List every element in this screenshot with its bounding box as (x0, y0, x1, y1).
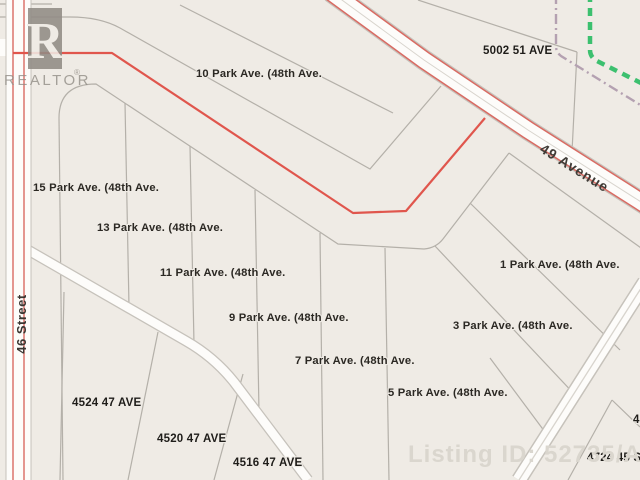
street-label-46-street: 46 Street (14, 294, 29, 354)
parcel-label-3-park-ave: 3 Park Ave. (48th Ave. (453, 320, 573, 332)
parcel-label-4516-47-ave: 4516 47 AVE (233, 457, 302, 469)
parcel-label-9-park-ave: 9 Park Ave. (48th Ave. (229, 312, 349, 324)
realtor-logo-letter: R (26, 13, 65, 70)
listing-id-watermark: Listing ID: 52735/AWBA (408, 441, 640, 468)
map-svg: 10 Park Ave. (48th Ave. 15 Park Ave. (48… (0, 0, 640, 480)
parcel-label-11-park-ave: 11 Park Ave. (48th Ave. (160, 267, 285, 279)
parcel-label-7-park-ave: 7 Park Ave. (48th Ave. (295, 355, 415, 367)
parcel-label-5002-51-ave: 5002 51 AVE (483, 45, 552, 57)
parcel-label-10-park-ave: 10 Park Ave. (48th Ave. (196, 68, 322, 80)
parcel-map-canvas[interactable]: 10 Park Ave. (48th Ave. 15 Park Ave. (48… (0, 0, 640, 480)
parcel-label-15-park-ave: 15 Park Ave. (48th Ave. (33, 182, 159, 194)
registered-trademark-icon: ® (74, 68, 80, 77)
parcel-label-13-park-ave: 13 Park Ave. (48th Ave. (97, 222, 223, 234)
parcel-label-4524-47-ave: 4524 47 AVE (72, 397, 141, 409)
parcel-label-1-park-ave: 1 Park Ave. (48th Ave. (500, 259, 620, 271)
parcel-label-4520-47-ave: 4520 47 AVE (157, 433, 226, 445)
parcel-label-5-park-ave: 5 Park Ave. (48th Ave. (388, 387, 508, 399)
parcel-label-fragment: 4 (633, 414, 640, 426)
